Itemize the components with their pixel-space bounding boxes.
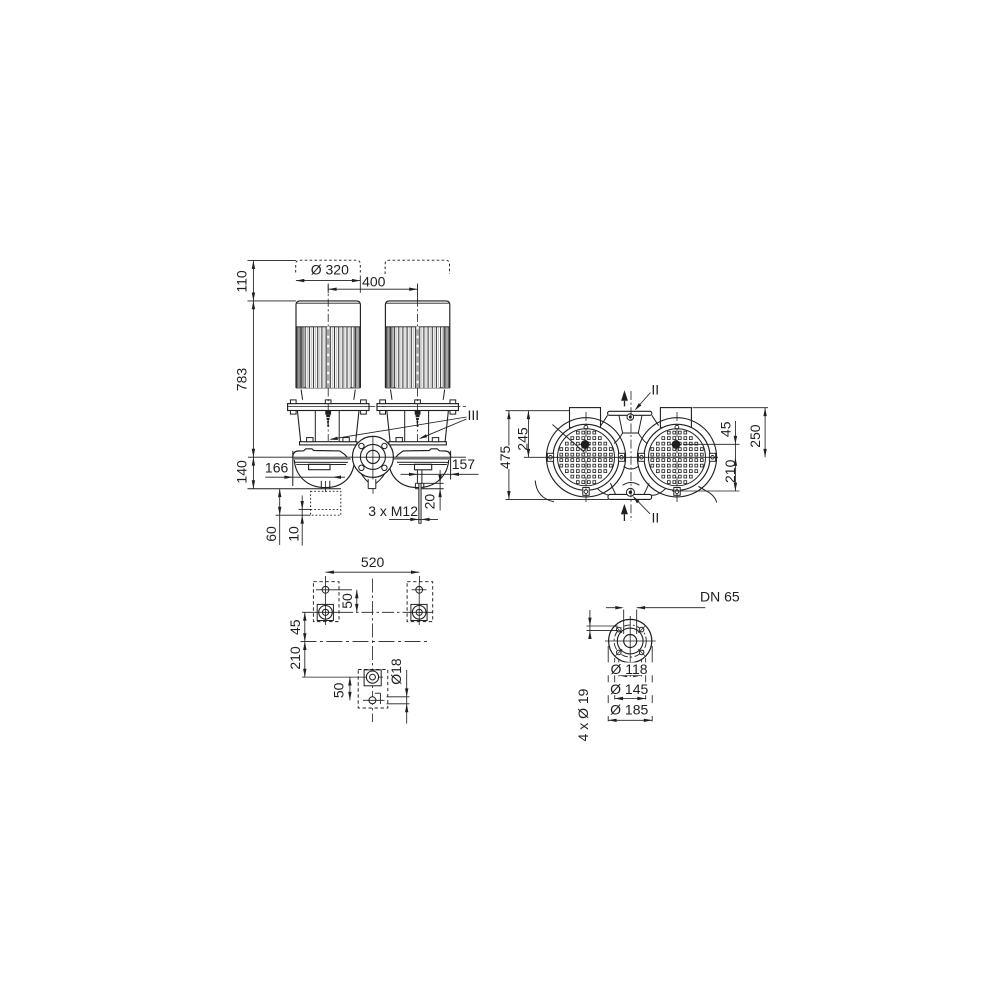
svg-text:520: 520 [361, 554, 385, 570]
svg-text:DN 65: DN 65 [700, 589, 740, 605]
svg-text:166: 166 [265, 459, 289, 475]
svg-text:II: II [651, 382, 659, 398]
svg-text:210: 210 [722, 459, 738, 483]
svg-text:245: 245 [515, 427, 531, 451]
svg-text:50: 50 [339, 593, 355, 609]
svg-text:3 x M12: 3 x M12 [368, 503, 418, 519]
svg-text:4 x Ø 19: 4 x Ø 19 [575, 688, 591, 741]
svg-text:20: 20 [422, 494, 438, 510]
svg-text:110: 110 [234, 270, 250, 293]
svg-text:III: III [467, 407, 479, 423]
svg-text:45: 45 [718, 421, 734, 437]
svg-text:45: 45 [287, 619, 303, 635]
svg-text:210: 210 [287, 646, 303, 670]
svg-text:Ø 320: Ø 320 [311, 262, 349, 278]
svg-text:10: 10 [286, 526, 302, 542]
svg-text:783: 783 [234, 368, 250, 392]
svg-text:Ø 145: Ø 145 [610, 681, 648, 697]
svg-text:Ø18: Ø18 [388, 658, 404, 685]
svg-text:II: II [652, 510, 660, 526]
svg-text:400: 400 [362, 273, 386, 289]
svg-text:Ø 185: Ø 185 [610, 702, 648, 718]
svg-text:157: 157 [452, 456, 476, 472]
svg-text:140: 140 [234, 460, 250, 484]
svg-text:475: 475 [497, 446, 513, 470]
svg-text:Ø 118: Ø 118 [610, 661, 647, 677]
svg-text:50: 50 [330, 682, 346, 698]
svg-text:60: 60 [263, 526, 279, 542]
svg-text:250: 250 [747, 424, 763, 448]
